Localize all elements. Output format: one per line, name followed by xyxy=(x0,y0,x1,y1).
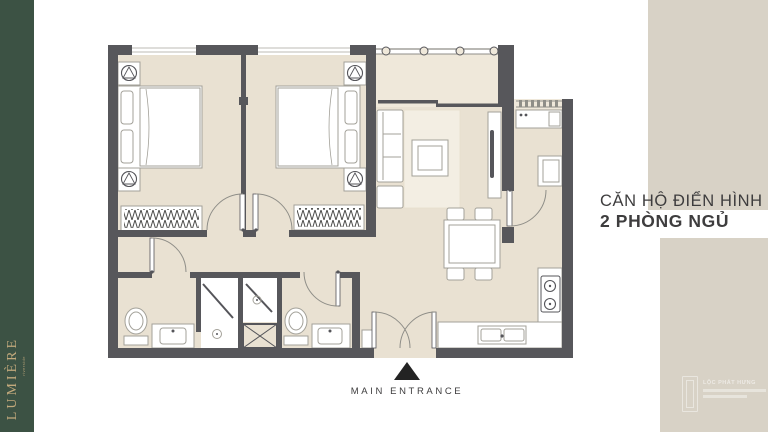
title-line-2: 2 PHÒNG NGỦ xyxy=(600,211,763,232)
watermark-line xyxy=(703,389,766,392)
entrance-arrow-icon xyxy=(394,362,420,380)
title-line-1: CĂN HỘ ĐIỂN HÌNH xyxy=(600,191,763,211)
developer-watermark-text: LỘC PHÁT HƯNG xyxy=(703,376,766,412)
bedroom-1-furniture xyxy=(118,62,202,231)
developer-logo-icon xyxy=(682,376,698,412)
watermark-line xyxy=(703,395,747,398)
plan-title: CĂN HỘ ĐIỂN HÌNH 2 PHÒNG NGỦ xyxy=(600,191,763,232)
entrance-doorway xyxy=(374,348,436,358)
developer-watermark: LỘC PHÁT HƯNG xyxy=(682,376,766,412)
accent-panel-top xyxy=(648,0,768,210)
watermark-line: LỘC PHÁT HƯNG xyxy=(703,380,766,386)
utility-area xyxy=(516,110,562,128)
brand-logo: LUMIÈRE xyxy=(5,337,21,420)
entrance-label: MAIN ENTRANCE xyxy=(329,386,485,397)
brand-tagline: riverside xyxy=(21,356,26,376)
page: LUMIÈRE riverside CĂN HỘ ĐIỂN HÌNH 2 PHÒ… xyxy=(0,0,768,432)
